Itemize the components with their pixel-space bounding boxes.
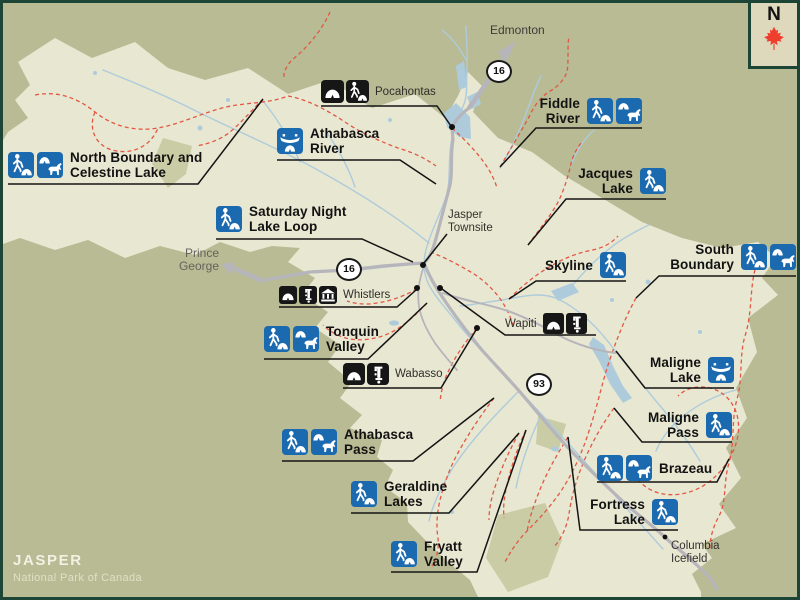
hiker-tent-icon	[597, 455, 623, 481]
trail-label-line: South	[670, 242, 734, 257]
hiker-tent-icon	[391, 541, 417, 567]
hiker-tent-icon	[600, 252, 626, 278]
trail-label-text: JacquesLake	[578, 166, 633, 196]
trail-label-text: North Boundary andCelestine Lake	[70, 150, 202, 180]
trail-label-saturday-night-lake-loop: Saturday NightLake Loop	[216, 204, 346, 234]
trail-label-text: TonquinValley	[326, 324, 379, 354]
trail-label-text: AthabascaRiver	[310, 126, 379, 156]
place-label-prince-george: PrinceGeorge	[179, 247, 219, 273]
trail-label-line: Maligne	[648, 410, 699, 425]
hiker-tent-icon	[706, 412, 732, 438]
hiker-tent-icon	[587, 98, 613, 124]
trail-label-line: Athabasca	[310, 126, 379, 141]
maple-leaf-icon	[762, 26, 786, 54]
trail-label-line: Fiddle	[540, 96, 580, 111]
trail-label-line: Pass	[648, 425, 699, 440]
trail-label-line: Fortress	[590, 497, 645, 512]
horse-tent-icon	[616, 98, 642, 124]
park-subtitle: National Park of Canada	[13, 572, 142, 584]
campground-icon	[279, 286, 297, 304]
trail-icons	[277, 128, 303, 154]
trail-icons	[351, 481, 377, 507]
trail-label-text: FryattValley	[424, 539, 463, 569]
place-label-line: Columbia	[671, 540, 720, 553]
north-indicator: N	[748, 3, 797, 69]
trail-label-line: Valley	[326, 339, 379, 354]
trail-icons	[706, 412, 732, 438]
trail-label-maligne-pass: MalignePass	[648, 410, 732, 440]
place-label-jasper-townsite: JasperTownsite	[448, 209, 493, 235]
facility-icons	[543, 313, 587, 334]
jasper-park-map: North Boundary andCelestine LakeAthabasc…	[0, 0, 800, 600]
trail-label-athabasca-river: AthabascaRiver	[277, 126, 379, 156]
place-label-line: Icefield	[671, 553, 720, 566]
place-label-line: Townsite	[448, 222, 493, 235]
trail-icons	[652, 499, 678, 525]
facility-label-whistlers: Whistlers	[279, 286, 390, 304]
water-pump-icon	[299, 286, 317, 304]
trail-label-geraldine-lakes: GeraldineLakes	[351, 479, 447, 509]
trail-icons	[597, 455, 652, 481]
trail-label-line: Fryatt	[424, 539, 463, 554]
trail-label-text: AthabascaPass	[344, 427, 413, 457]
trail-label-line: Tonquin	[326, 324, 379, 339]
trail-label-north-boundary-celestine-lake: North Boundary andCelestine Lake	[8, 150, 202, 180]
hiker-tent-icon	[741, 244, 767, 270]
trail-label-line: North Boundary and	[70, 150, 202, 165]
trail-label-south-boundary: SouthBoundary	[670, 242, 796, 272]
trail-icons	[282, 429, 337, 455]
facility-label-pocahontas: Pocahontas	[321, 80, 436, 103]
trail-label-fortress-lake: FortressLake	[590, 497, 678, 527]
trail-label-line: Lake	[650, 370, 701, 385]
pocahontas-marker	[449, 124, 455, 130]
canoe-tent-icon	[708, 357, 734, 383]
water-pump-icon	[367, 363, 389, 385]
trail-label-line: River	[540, 111, 580, 126]
horse-tent-icon	[626, 455, 652, 481]
place-label-edmonton: Edmonton	[490, 24, 545, 37]
trail-icons	[640, 168, 666, 194]
horse-tent-icon	[37, 152, 63, 178]
trail-icons	[708, 357, 734, 383]
jasper-townsite-marker	[420, 262, 426, 268]
trail-label-fryatt-valley: FryattValley	[391, 539, 463, 569]
trail-label-line: Geraldine	[384, 479, 447, 494]
trail-icons	[216, 206, 242, 232]
trail-label-line: Boundary	[670, 257, 734, 272]
wabasso-marker	[474, 325, 480, 331]
trail-label-line: Saturday Night	[249, 204, 346, 219]
trail-label-text: GeraldineLakes	[384, 479, 447, 509]
campground-icon	[543, 313, 564, 334]
facility-label-text: Wapiti	[505, 318, 537, 330]
north-label: N	[767, 4, 781, 26]
trail-label-line: Pass	[344, 442, 413, 457]
hiker-tent-icon	[640, 168, 666, 194]
trail-icons	[8, 152, 63, 178]
trail-label-line: Athabasca	[344, 427, 413, 442]
facility-icons	[321, 80, 369, 103]
trail-icons	[264, 326, 319, 352]
facility-label-wabasso: Wabasso	[343, 363, 443, 385]
trail-label-maligne-lake: MaligneLake	[650, 355, 734, 385]
hiker-tent-icon	[264, 326, 290, 352]
trail-label-text: SouthBoundary	[670, 242, 734, 272]
horse-tent-icon	[770, 244, 796, 270]
trail-label-line: Lake Loop	[249, 219, 346, 234]
place-label-line: Jasper	[448, 209, 493, 222]
trail-label-line: River	[310, 141, 379, 156]
trail-label-line: Valley	[424, 554, 463, 569]
highway-93-shield: 93	[526, 373, 552, 396]
trail-label-line: Lakes	[384, 494, 447, 509]
horse-tent-icon	[293, 326, 319, 352]
whistlers-marker	[414, 285, 420, 291]
trail-label-text: FiddleRiver	[540, 96, 580, 126]
trail-label-line: Lake	[578, 181, 633, 196]
title-block: JASPER National Park of Canada	[13, 552, 142, 584]
trail-label-skyline: Skyline	[545, 252, 626, 278]
trail-icons	[600, 252, 626, 278]
place-label-line: George	[179, 260, 219, 273]
facility-label-text: Whistlers	[343, 289, 390, 301]
trail-label-text: Saturday NightLake Loop	[249, 204, 346, 234]
highway-16-shield: 16	[486, 60, 512, 83]
trail-label-line: Lake	[590, 512, 645, 527]
trail-label-athabasca-pass: AthabascaPass	[282, 427, 413, 457]
columbia-icefield-marker	[663, 535, 668, 540]
facility-label-text: Pocahontas	[375, 86, 436, 98]
hiker-tent-icon	[351, 481, 377, 507]
trail-label-text: Skyline	[545, 258, 593, 273]
place-label-columbia-icefield: ColumbiaIcefield	[671, 540, 720, 566]
trail-label-brazeau: Brazeau	[597, 455, 712, 481]
trail-label-jacques-lake: JacquesLake	[578, 166, 666, 196]
facility-label-text: Wabasso	[395, 368, 443, 380]
facility-icons	[279, 286, 337, 304]
trail-label-tonquin-valley: TonquinValley	[264, 324, 379, 354]
hiker-tent-icon	[282, 429, 308, 455]
hiker-tent-icon	[346, 80, 369, 103]
trail-label-text: MaligneLake	[650, 355, 701, 385]
trail-label-line: Celestine Lake	[70, 165, 202, 180]
trail-label-text: Brazeau	[659, 461, 712, 476]
horse-tent-icon	[311, 429, 337, 455]
facility-label-wapiti: Wapiti	[505, 313, 587, 334]
facility-icons	[343, 363, 389, 385]
trail-label-line: Skyline	[545, 258, 593, 273]
trail-label-text: FortressLake	[590, 497, 645, 527]
highway-16-shield: 16	[336, 258, 362, 281]
trail-icons	[741, 244, 796, 270]
trail-label-line: Jacques	[578, 166, 633, 181]
campground-icon	[321, 80, 344, 103]
hiker-tent-icon	[652, 499, 678, 525]
park-title: JASPER	[13, 552, 142, 569]
trail-label-text: MalignePass	[648, 410, 699, 440]
hiker-tent-icon	[8, 152, 34, 178]
place-label-line: Edmonton	[490, 24, 545, 37]
trail-icons	[391, 541, 417, 567]
wapiti-marker	[437, 285, 443, 291]
trail-label-line: Brazeau	[659, 461, 712, 476]
water-pump-icon	[566, 313, 587, 334]
trail-label-line: Maligne	[650, 355, 701, 370]
interpretive-building-icon	[319, 286, 337, 304]
hiker-tent-icon	[216, 206, 242, 232]
canoe-tent-icon	[277, 128, 303, 154]
trail-icons	[587, 98, 642, 124]
trail-label-fiddle-river: FiddleRiver	[540, 96, 642, 126]
campground-icon	[343, 363, 365, 385]
